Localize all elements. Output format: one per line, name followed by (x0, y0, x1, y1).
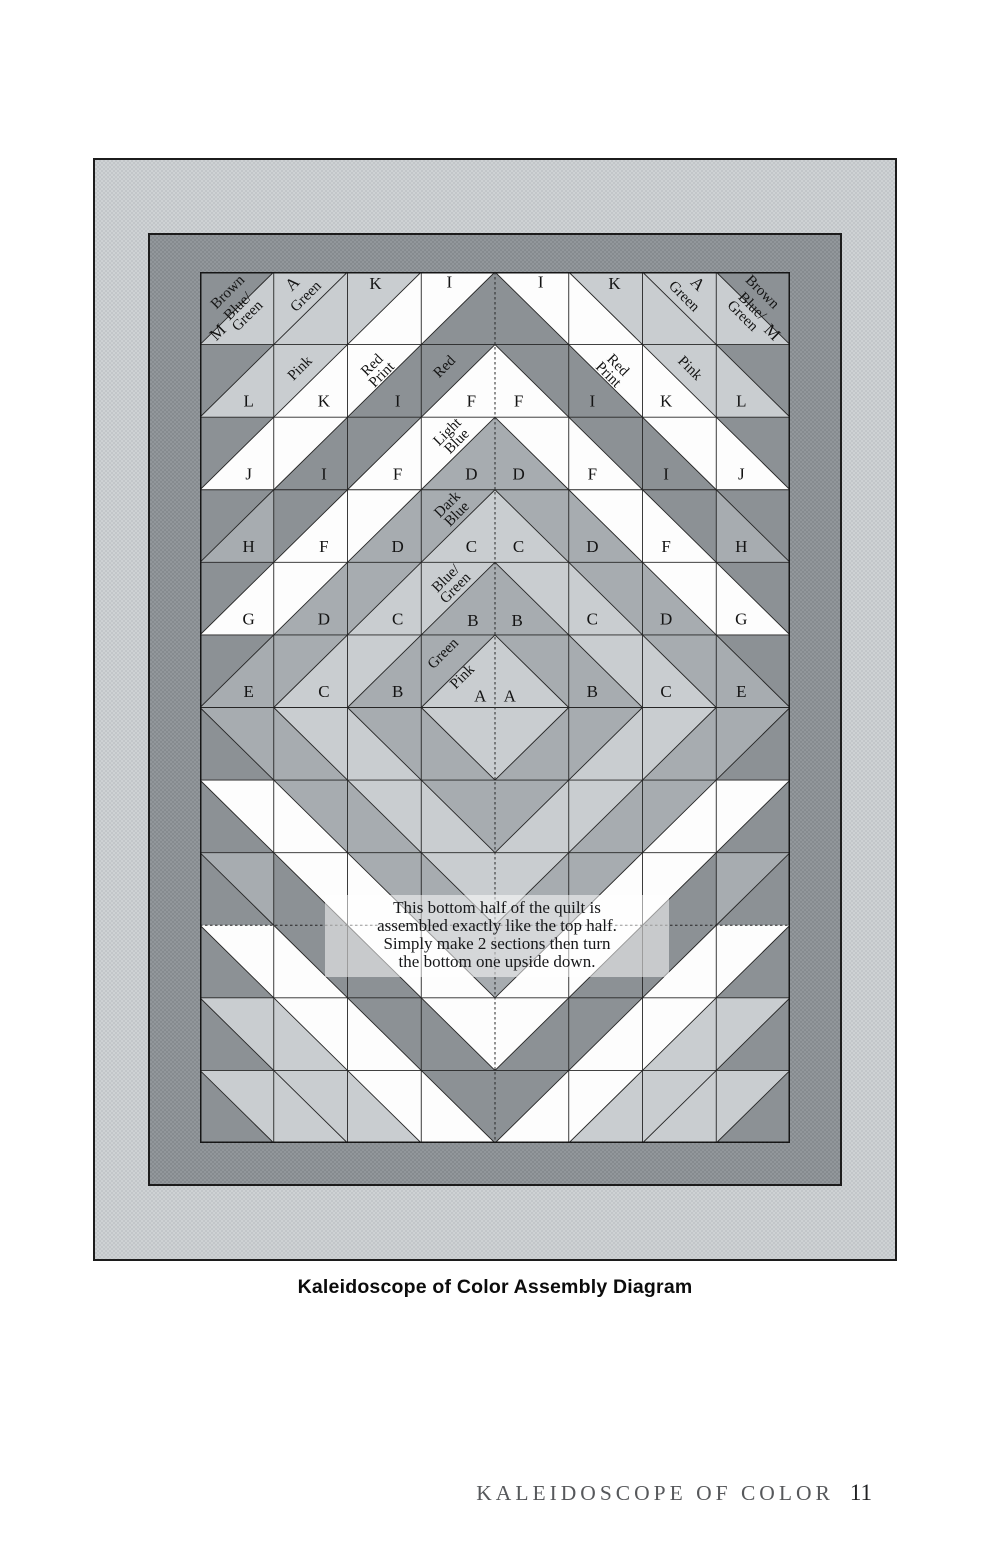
template-letter: K (660, 392, 673, 411)
template-letter: D (512, 464, 524, 483)
template-letter: E (736, 682, 746, 701)
template-letter: L (736, 392, 746, 411)
template-letter: F (319, 537, 328, 556)
caption: Kaleidoscope of Color Assembly Diagram (93, 1276, 897, 1299)
template-letter: G (735, 609, 747, 628)
template-letter: A (504, 686, 517, 705)
template-letter: F (514, 392, 523, 411)
template-letter: J (738, 464, 745, 483)
template-letter: C (392, 609, 403, 628)
note-line: the bottom one upside down. (325, 953, 669, 971)
template-letter: I (590, 392, 596, 411)
template-letter: I (321, 464, 327, 483)
note-line: This bottom half of the quilt is (325, 899, 669, 917)
template-letter: C (660, 682, 671, 701)
footer: KALEIDOSCOPE OF COLOR11 (476, 1480, 872, 1506)
template-letter: D (660, 609, 672, 628)
template-letter: G (243, 609, 255, 628)
quilt-inner-border: BrownMBlue/GreenAGreenKIIKAGreenBrownBlu… (148, 233, 842, 1186)
template-letter: F (661, 537, 670, 556)
template-letter: K (318, 392, 331, 411)
template-letter: B (467, 611, 478, 630)
page: BrownMBlue/GreenAGreenKIIKAGreenBrownBlu… (0, 0, 1000, 1545)
template-letter: F (393, 464, 402, 483)
note-line: assembled exactly like the top half. (325, 917, 669, 935)
template-letter: F (467, 392, 476, 411)
template-letter: H (735, 537, 747, 556)
template-letter: H (243, 537, 255, 556)
template-letter: C (466, 537, 477, 556)
template-letter: D (465, 464, 477, 483)
template-letter: L (243, 392, 253, 411)
footer-title: KALEIDOSCOPE OF COLOR (476, 1481, 834, 1505)
template-letter: F (588, 464, 597, 483)
template-letter: I (395, 392, 401, 411)
template-letter: I (446, 273, 452, 292)
template-letter: B (587, 682, 598, 701)
page-number: 11 (850, 1480, 872, 1505)
template-letter: C (587, 609, 598, 628)
template-letter: B (392, 682, 403, 701)
template-letter: B (511, 611, 522, 630)
template-letter: I (663, 464, 669, 483)
template-letter: I (538, 273, 544, 292)
template-letter: D (318, 609, 330, 628)
assembly-note: This bottom half of the quilt is assembl… (325, 895, 669, 977)
quilt-grid: BrownMBlue/GreenAGreenKIIKAGreenBrownBlu… (200, 272, 790, 1143)
template-letter: K (608, 274, 621, 293)
template-letter: K (369, 274, 382, 293)
template-letter: D (586, 537, 598, 556)
template-letter: J (245, 464, 252, 483)
template-letter: A (474, 686, 487, 705)
template-letter: E (243, 682, 253, 701)
quilt-outer-border: BrownMBlue/GreenAGreenKIIKAGreenBrownBlu… (93, 158, 897, 1261)
template-letter: D (392, 537, 404, 556)
template-letter: C (318, 682, 329, 701)
note-line: Simply make 2 sections then turn (325, 935, 669, 953)
template-letter: C (513, 537, 524, 556)
